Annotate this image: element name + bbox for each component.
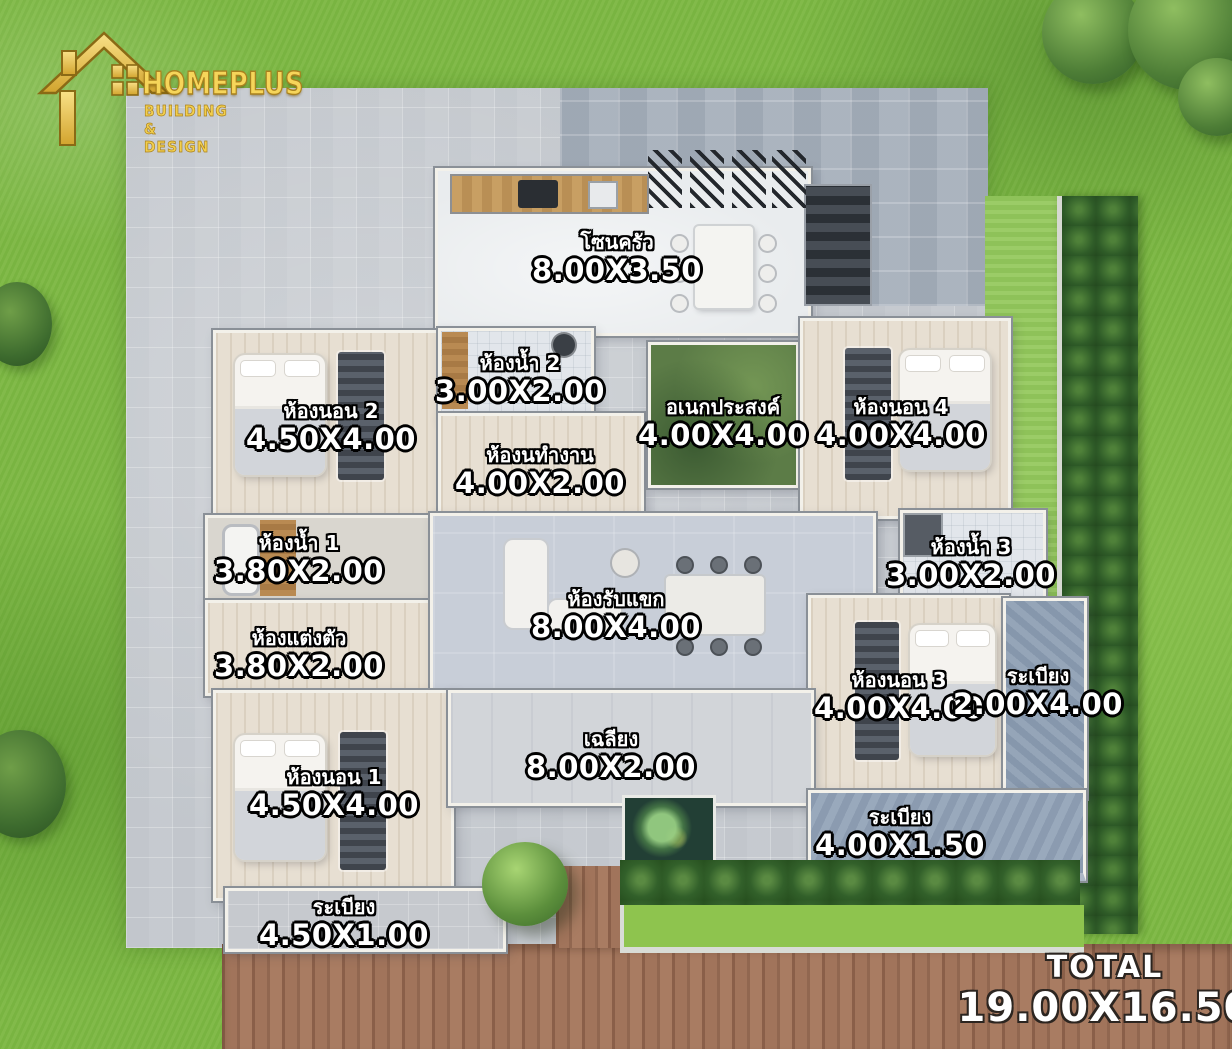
room-name: ห้องรับแขก bbox=[531, 588, 701, 611]
room-dimensions: 4.50X1.00 bbox=[259, 919, 429, 951]
bush bbox=[0, 730, 66, 838]
room-label-bedroom-2: ห้องนอน 2 4.50X4.00 bbox=[246, 400, 416, 455]
pillow bbox=[906, 356, 940, 371]
room-label-bedroom-1: ห้องนอน 1 4.50X4.00 bbox=[249, 766, 419, 821]
pillow bbox=[950, 356, 984, 371]
room-label-bedroom-4: ห้องนอน 4 4.00X4.00 bbox=[816, 396, 986, 451]
room-dimensions: 3.00X2.00 bbox=[435, 375, 605, 407]
pillow bbox=[957, 631, 989, 646]
room-dimensions: 3.80X2.00 bbox=[214, 650, 384, 682]
room-name: เฉลียง bbox=[526, 728, 696, 751]
chair bbox=[746, 640, 760, 654]
room-name: อเนกประสงค์ bbox=[638, 396, 808, 419]
room-label-balcony-southwest: ระเบียง 4.50X1.00 bbox=[259, 896, 429, 951]
room-label-kitchen: โซนครัว 8.00X3.50 bbox=[532, 231, 702, 286]
kitchen-sink bbox=[588, 181, 618, 209]
room-dimensions: 4.50X4.00 bbox=[246, 423, 416, 455]
room-dimensions: 4.00X1.50 bbox=[815, 829, 985, 861]
bush bbox=[0, 282, 52, 366]
garden-pond bbox=[625, 798, 713, 864]
room-dimensions: 4.00X4.00 bbox=[816, 419, 986, 451]
room-label-bathroom-2: ห้องน้ำ 2 3.00X2.00 bbox=[435, 352, 605, 407]
garden-bushes bbox=[620, 860, 1080, 910]
room-name: โซนครัว bbox=[532, 231, 702, 254]
room-dimensions: 4.00X2.00 bbox=[455, 467, 625, 499]
room-dimensions: 3.00X2.00 bbox=[886, 559, 1056, 591]
room-name: ห้องนอน 2 bbox=[246, 400, 416, 423]
room-name: ระเบียง bbox=[815, 806, 985, 829]
site-plan-render: โซนครัว 8.00X3.50 ห้องน้ำ 2 3.00X2.00 ห้… bbox=[0, 0, 1232, 1049]
room-label-living: ห้องรับแขก 8.00X4.00 bbox=[531, 588, 701, 643]
pergola-slats bbox=[772, 150, 806, 208]
room-label-multipurpose: อเนกประสงค์ 4.00X4.00 bbox=[638, 396, 808, 451]
chair bbox=[760, 266, 775, 281]
total-title: TOTAL bbox=[958, 950, 1232, 986]
room-dimensions: 8.00X3.50 bbox=[532, 254, 702, 286]
room-dimensions: 8.00X4.00 bbox=[531, 611, 701, 643]
chair bbox=[712, 558, 726, 572]
brand-name: HOMEPLUS bbox=[142, 66, 304, 102]
coffee-table bbox=[612, 550, 638, 576]
pillow bbox=[241, 361, 275, 376]
brand-tagline: BUILDING & DESIGN bbox=[144, 102, 228, 156]
garden-grass-bed bbox=[620, 905, 1084, 953]
room-name: ห้องนทำงาน bbox=[455, 444, 625, 467]
room-dimensions: 2.00X4.00 bbox=[953, 688, 1123, 720]
pergola-slats bbox=[732, 150, 766, 208]
room-name: ระเบียง bbox=[259, 896, 429, 919]
room-name: ห้องน้ำ 1 bbox=[214, 532, 384, 555]
chair bbox=[678, 558, 692, 572]
room-name: ห้องน้ำ 2 bbox=[435, 352, 605, 375]
room-label-dressing: ห้องแต่งตัว 3.80X2.00 bbox=[214, 627, 384, 682]
total-dimensions: 19.00X16.50 bbox=[958, 986, 1232, 1030]
pillow bbox=[285, 361, 319, 376]
outdoor-stairs bbox=[806, 186, 870, 304]
room-dimensions: 4.50X4.00 bbox=[249, 789, 419, 821]
room-label-porch: เฉลียง 8.00X2.00 bbox=[526, 728, 696, 783]
room-name: ห้องแต่งตัว bbox=[214, 627, 384, 650]
room-dimensions: 3.80X2.00 bbox=[214, 555, 384, 587]
pergola-slats bbox=[690, 150, 724, 208]
chair bbox=[760, 296, 775, 311]
pillow bbox=[241, 741, 275, 756]
room-label-balcony-southeast: ระเบียง 4.00X1.50 bbox=[815, 806, 985, 861]
stove bbox=[518, 180, 558, 208]
room-name: ห้องน้ำ 3 bbox=[886, 536, 1056, 559]
pergola-slats bbox=[648, 150, 682, 208]
kitchen-dining-table bbox=[695, 226, 753, 308]
chair bbox=[746, 558, 760, 572]
room-label-bathroom-1: ห้องน้ำ 1 3.80X2.00 bbox=[214, 532, 384, 587]
room-name: ห้องนอน 1 bbox=[249, 766, 419, 789]
room-dimensions: 4.00X4.00 bbox=[638, 419, 808, 451]
room-label-bathroom-3: ห้องน้ำ 3 3.00X2.00 bbox=[886, 536, 1056, 591]
chair bbox=[712, 640, 726, 654]
room-dimensions: 8.00X2.00 bbox=[526, 751, 696, 783]
chair bbox=[760, 236, 775, 251]
porch-tree bbox=[482, 842, 568, 926]
total-size-label: TOTAL 19.00X16.50 bbox=[958, 950, 1232, 1030]
pillow bbox=[285, 741, 319, 756]
room-label-balcony-east: ระเบียง 2.00X4.00 bbox=[953, 665, 1123, 720]
room-name: ระเบียง bbox=[953, 665, 1123, 688]
pillow bbox=[916, 631, 948, 646]
room-name: ห้องนอน 4 bbox=[816, 396, 986, 419]
room-label-office: ห้องนทำงาน 4.00X2.00 bbox=[455, 444, 625, 499]
chair bbox=[672, 296, 687, 311]
